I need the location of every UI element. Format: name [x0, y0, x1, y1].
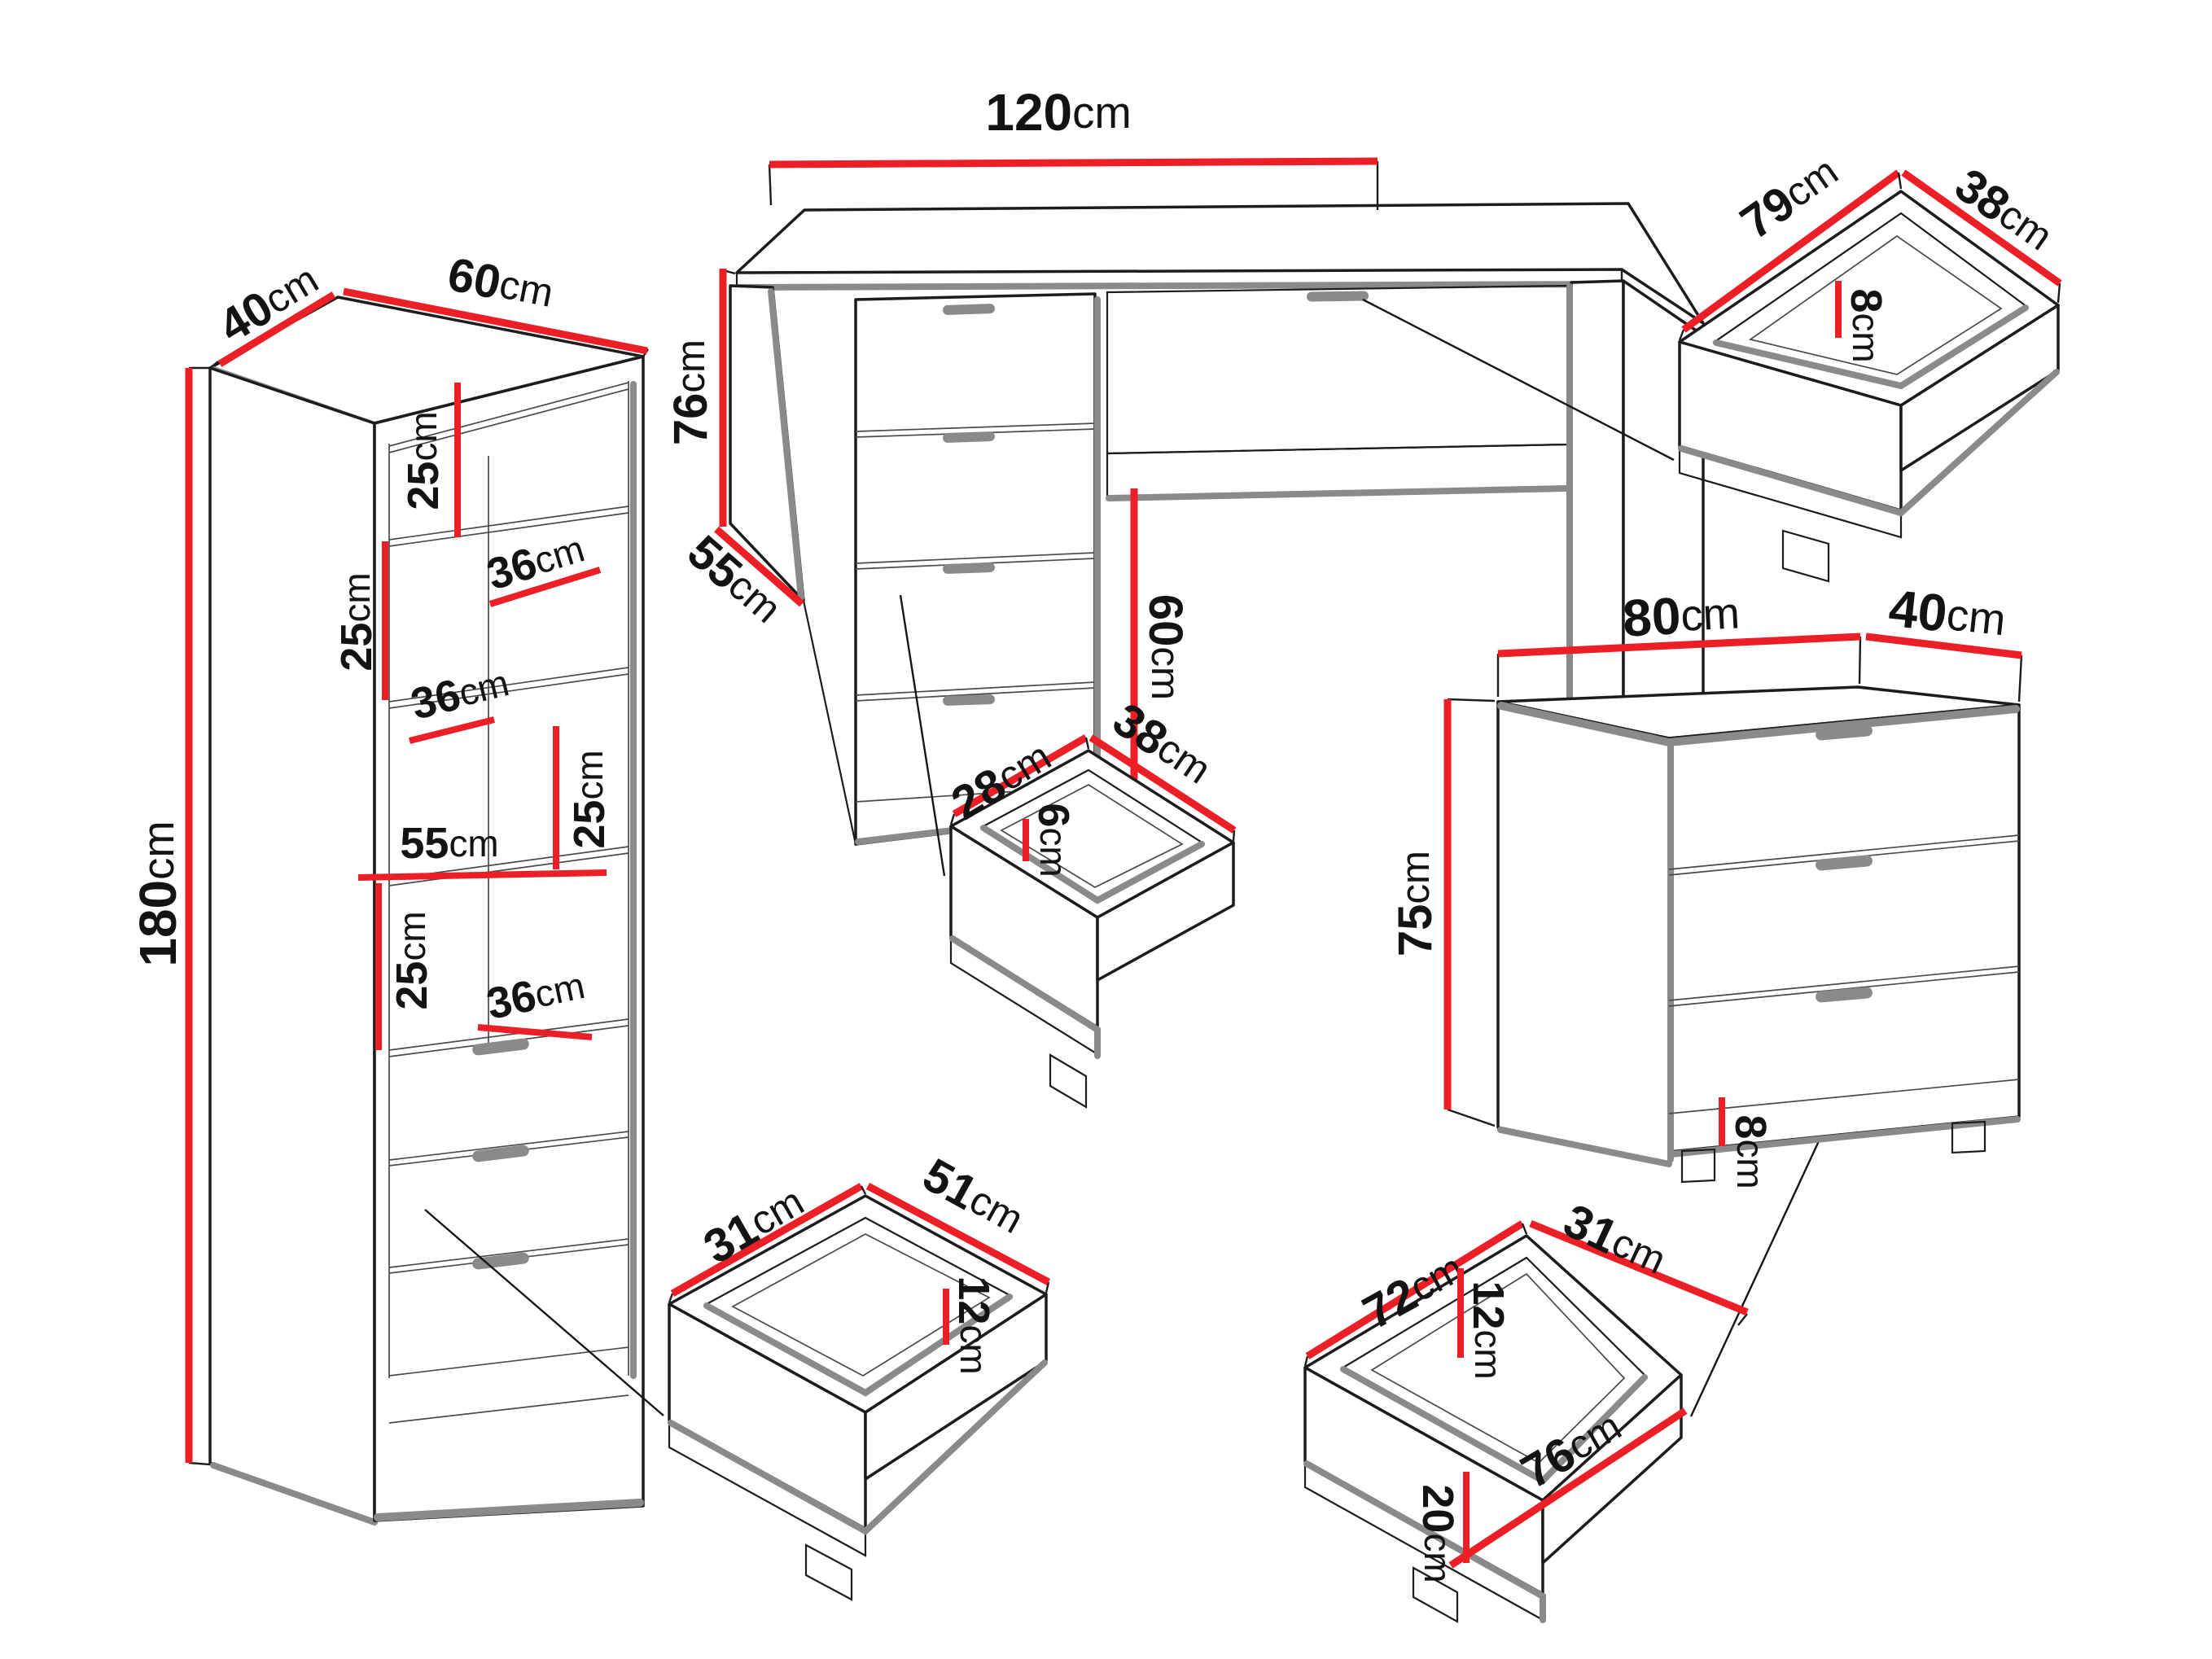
dim-tick — [1305, 1356, 1307, 1366]
dim-desk-height: 76cm — [664, 269, 736, 527]
dim-shelf-width-label: 55cm — [400, 819, 498, 868]
dim-chest-depth-label: 40cm — [1886, 579, 2008, 650]
dim-drawer72-inner-height-label: 12cm — [1464, 1280, 1513, 1379]
desk-drawer-handle — [943, 694, 995, 706]
dim-tick — [1233, 830, 1234, 841]
dim-drawer28-height-label: 6cm — [1029, 803, 1078, 877]
dim-drawer51-height-label: 12cm — [949, 1276, 998, 1374]
dim-tick — [1448, 1110, 1495, 1126]
dim-tick — [1738, 1314, 1747, 1325]
chest-drawer-72: 72cm 31cm 12cm 20cm 76cm — [1305, 1193, 1747, 1622]
dim-drawer72-depth-label: 31cm — [1556, 1193, 1675, 1286]
dim-desk-width: 120cm — [769, 83, 1378, 210]
dim-top-section-label: 25cm — [399, 411, 448, 510]
dim-chest-plinth-label: 8cm — [1726, 1114, 1775, 1188]
dim-chest-depth: 40cm — [1866, 579, 2021, 702]
dim-tick — [2019, 655, 2021, 702]
dim-tick — [1448, 699, 1495, 701]
dim-drawer51-inner-height: 12cm — [946, 1276, 998, 1374]
dim-drawer72-front-height-label: 20cm — [1413, 1484, 1462, 1582]
desk-drawer-79: 79cm 38cm 8cm — [1680, 145, 2063, 581]
dim-line-desk-width — [769, 161, 1378, 164]
chest-side-face — [1498, 702, 1669, 1162]
dim-wardrobe-height: 180cm — [129, 368, 210, 1464]
wardrobe: 40cm 60cm 180cm 25cm 36cm 25cm 36cm — [129, 247, 648, 1522]
desk-left-panel-connector — [804, 601, 856, 844]
wardrobe-side-panel — [210, 368, 375, 1521]
dim-chest-width-label: 80cm — [1621, 583, 1741, 647]
dim-drawer79-inner-height: 8cm — [1838, 281, 1890, 363]
diagram-canvas: 40cm 60cm 180cm 25cm 36cm 25cm 36cm — [0, 0, 2212, 1659]
dim-tick — [189, 1463, 210, 1464]
dim-tick — [769, 164, 771, 205]
dim-drawer79-height-label: 8cm — [1842, 288, 1890, 362]
desk-drawer-handle — [943, 304, 995, 315]
dim-tick — [1899, 173, 1901, 189]
dim-tick — [861, 1186, 865, 1194]
dim-desk-height-label: 76cm — [664, 339, 717, 445]
dim-desk-knee-label: 60cm — [1140, 594, 1193, 700]
desk-drawer-handle — [943, 431, 995, 443]
dim-tick — [1522, 1223, 1526, 1234]
dim-drawer72-inner-height: 12cm — [1461, 1268, 1513, 1380]
dim-chest-height: 75cm — [1389, 699, 1496, 1126]
desk-wide-drawer-handle — [1307, 291, 1369, 301]
dim-lower-section-label: 25cm — [565, 750, 614, 848]
chest: 80cm 40cm 75cm 8cm — [1389, 579, 2022, 1189]
dim-drawer72-front-height: 20cm — [1413, 1472, 1466, 1583]
desk-drawer-handle — [943, 562, 995, 574]
dim-bottom-section-label: 25cm — [388, 911, 436, 1009]
cabinet-drawer-51: 31cm 51cm 12cm — [669, 1148, 1049, 1600]
dim-tick — [2058, 283, 2060, 303]
dim-drawer79-width-label: 79cm — [1731, 145, 1848, 249]
dim-tick — [1859, 637, 1860, 684]
dim-wardrobe-width-label: 60cm — [444, 247, 558, 320]
desk-knee-rail-shadow — [1109, 488, 1566, 498]
drawer51-foot — [806, 1545, 852, 1600]
dim-drawer28-inner-height: 6cm — [1026, 803, 1078, 877]
dim-chest-height-label: 75cm — [1389, 851, 1442, 956]
furniture-dimensions-diagram: 40cm 60cm 180cm 25cm 36cm 25cm 36cm — [0, 0, 2212, 1659]
dim-mid-section-label: 25cm — [332, 572, 381, 671]
drawer28-foot — [1050, 1055, 1086, 1107]
dim-wardrobe-height-label: 180cm — [129, 821, 187, 966]
dim-desk-width-label: 120cm — [985, 83, 1131, 142]
drawer79-foot — [1783, 531, 1829, 581]
